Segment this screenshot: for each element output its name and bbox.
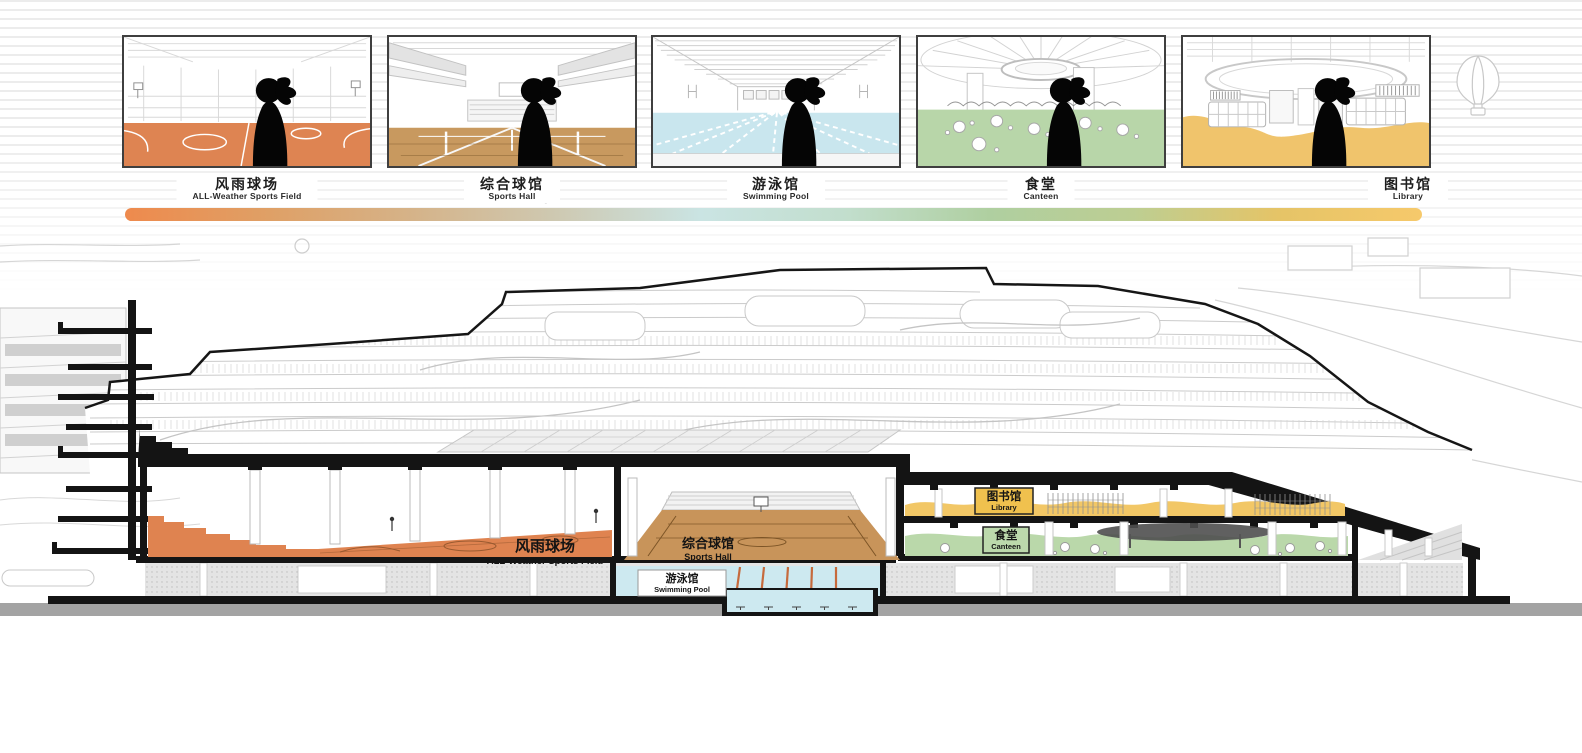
- section-canteen: 食堂 Canteen: [905, 522, 1348, 556]
- section-label-pool-cn: 游泳馆: [666, 571, 699, 585]
- hall-backboard: [754, 497, 768, 506]
- section-label-canteen-en: Canteen: [991, 542, 1021, 551]
- label-swimming-pool: 游泳馆 Swimming Pool: [727, 176, 825, 203]
- label-sports-hall-cn: 综合球馆: [480, 177, 544, 192]
- label-library: 图书馆 Library: [1368, 176, 1448, 203]
- section-sports-hall: 综合球馆 Sports Hall: [624, 478, 900, 562]
- label-canteen-cn: 食堂: [1024, 177, 1059, 192]
- section-label-canteen-cn: 食堂: [995, 528, 1018, 542]
- section-label-library-cn: 图书馆: [987, 489, 1022, 503]
- label-canteen-en: Canteen: [1024, 192, 1059, 201]
- label-swimming-pool-cn: 游泳馆: [743, 177, 809, 192]
- section-label-sports-field-cn: 风雨球场: [515, 537, 575, 555]
- label-swimming-pool-en: Swimming Pool: [743, 192, 809, 201]
- label-library-cn: 图书馆: [1384, 177, 1432, 192]
- label-canteen: 食堂 Canteen: [1008, 176, 1075, 203]
- panel-sports-field-view: [122, 35, 372, 168]
- panel-canteen-view: [916, 35, 1166, 168]
- skylight-grid: [438, 430, 900, 452]
- panel-floor: [124, 123, 370, 166]
- canteen-label-box: 食堂 Canteen: [983, 527, 1029, 553]
- presentation-board: 风雨球场 ALL-Weather Sports Field 综合球馆 Sport…: [0, 0, 1582, 753]
- section-label-sports-hall-cn: 综合球馆: [682, 536, 734, 551]
- pool-deep-pit: [722, 588, 878, 616]
- label-sports-field-en: ALL-Weather Sports Field: [192, 192, 301, 201]
- library-label-box: 图书馆 Library: [975, 488, 1033, 514]
- section-label-library-en: Library: [991, 503, 1017, 512]
- panel-sports-hall-view: [387, 35, 637, 168]
- panel-floor: [918, 110, 1164, 166]
- section-label-sports-field-en: ALL-Weather Sports Field: [487, 556, 604, 567]
- label-sports-hall: 综合球馆 Sports Hall: [464, 176, 560, 203]
- label-sports-field: 风雨球场 ALL-Weather Sports Field: [176, 176, 317, 203]
- section-sports-field: 风雨球场 ALL-Weather Sports Field: [148, 465, 612, 567]
- pool-label-box: 游泳馆 Swimming Pool: [638, 570, 726, 596]
- section-label-pool-en: Swimming Pool: [654, 585, 710, 594]
- label-library-en: Library: [1384, 192, 1432, 201]
- panel-swimming-pool-view: [651, 35, 901, 168]
- panel-library-view: [1181, 35, 1431, 168]
- program-gradient-bar: [125, 208, 1422, 221]
- section-label-sports-hall-en: Sports Hall: [684, 552, 732, 562]
- hot-air-balloon-icon: [1457, 56, 1499, 115]
- panel-hoops: [134, 81, 360, 98]
- label-sports-hall-en: Sports Hall: [480, 192, 544, 201]
- label-sports-field-cn: 风雨球场: [192, 177, 301, 192]
